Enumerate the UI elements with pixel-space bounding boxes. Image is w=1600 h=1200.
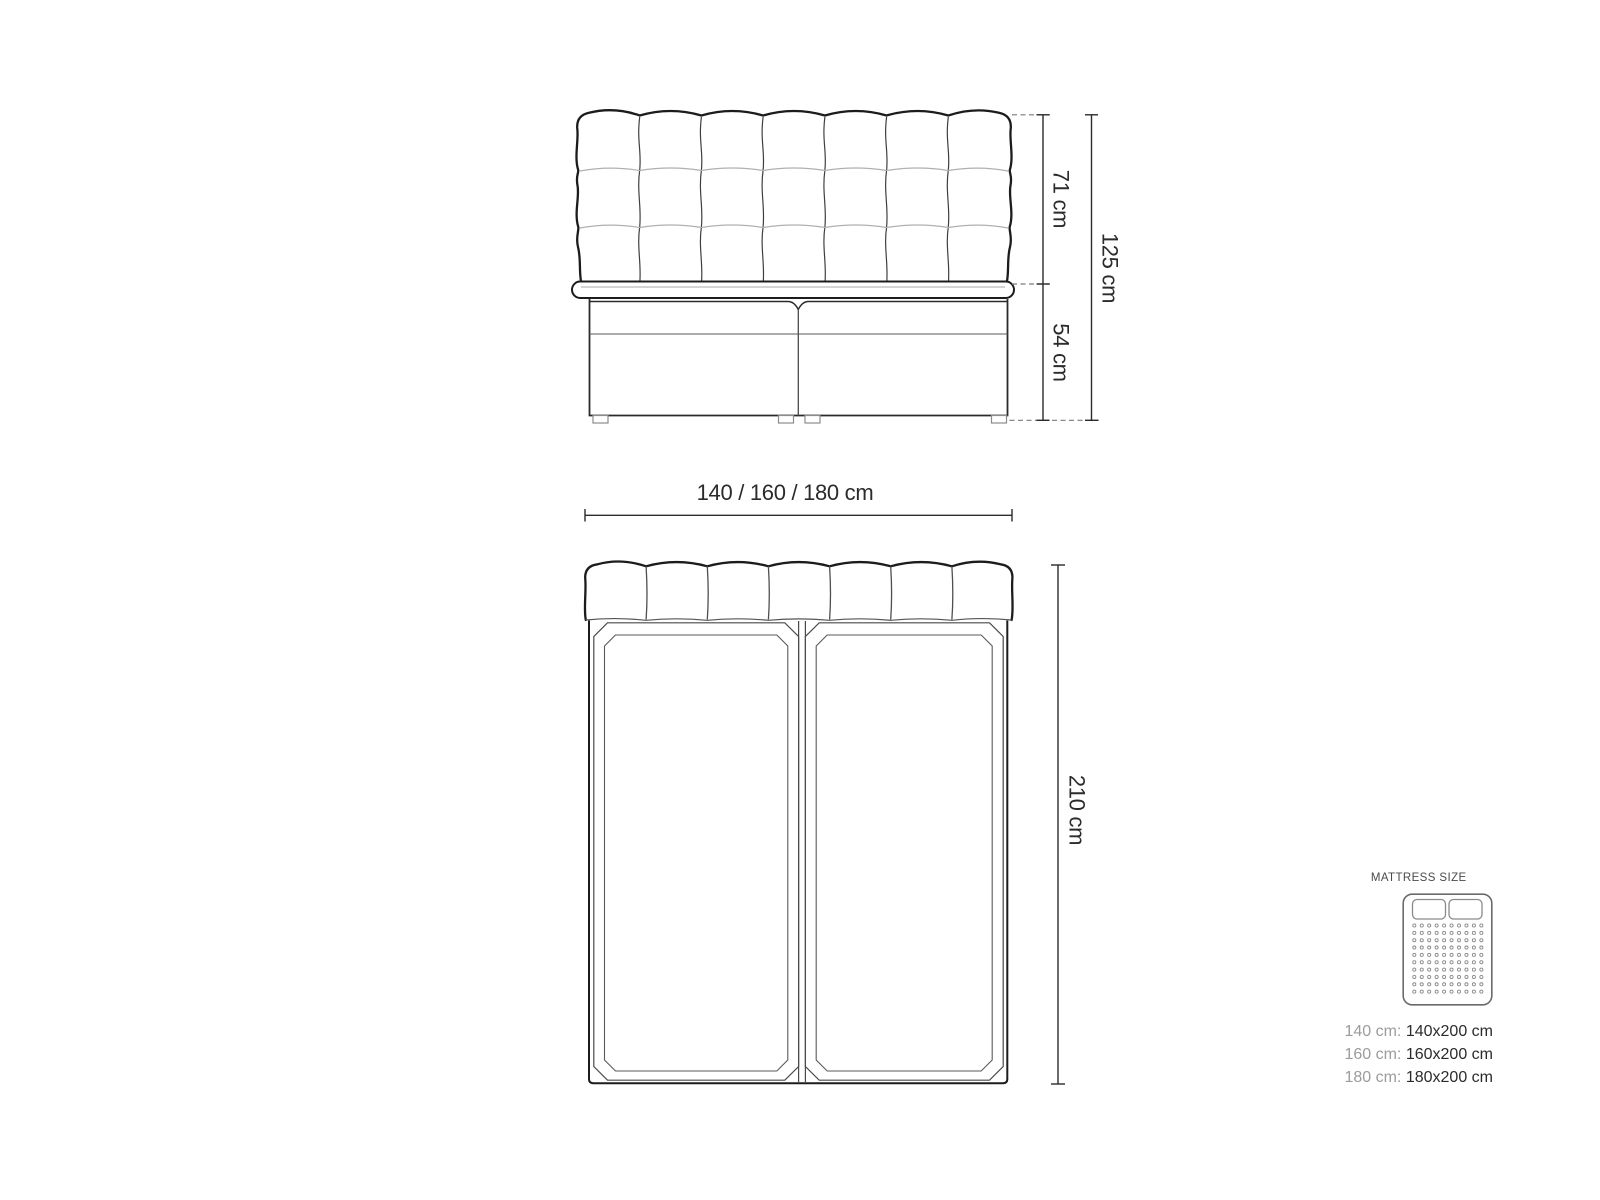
width-dimension: 140 / 160 / 180 cm: [585, 480, 1012, 522]
plan-view: 210 cm: [585, 561, 1090, 1084]
mattress-icon-body: [1403, 894, 1492, 1005]
mattress-size-legend: MATTRESS SIZE 140 cm: 140x200 cm 160 cm:…: [1344, 872, 1493, 1089]
bed-dimensions-diagram: 71 cm 54 cm 125 cm 140 / 160 / 180 cm: [0, 0, 1600, 1200]
size-row-180: 180 cm: 180x200 cm: [1344, 1066, 1493, 1089]
legend-title: MATTRESS SIZE: [1344, 872, 1493, 884]
height-dimension-line-71-54: [1037, 115, 1050, 421]
mattress-edge-bar: [572, 282, 1014, 299]
width-label: 140 / 160 / 180 cm: [697, 480, 874, 505]
headboard-outline: [576, 110, 1011, 293]
base-height-label: 54 cm: [1049, 323, 1074, 381]
size-value: 140x200 cm: [1406, 1023, 1493, 1040]
length-label: 210 cm: [1065, 775, 1090, 845]
plan-mattress-right: [805, 623, 1003, 1080]
size-value: 160x200 cm: [1406, 1046, 1493, 1063]
height-dimension-line-125: [1085, 115, 1098, 421]
size-row-160: 160 cm: 160x200 cm: [1344, 1043, 1493, 1066]
front-view: 71 cm 54 cm 125 cm: [572, 110, 1123, 423]
size-row-140: 140 cm: 140x200 cm: [1344, 1020, 1493, 1043]
headboard-height-label: 71 cm: [1049, 170, 1074, 228]
plan-headboard-dividers: [646, 566, 953, 619]
length-dimension-line-210: [1051, 565, 1065, 1084]
size-label: 180 cm:: [1344, 1069, 1401, 1086]
plan-mattress-left: [594, 623, 799, 1080]
plan-center-split: [799, 621, 806, 1082]
headboard-tuft-horizontal-seams: [580, 168, 1008, 228]
plan-headboard-bottom-edge: [586, 619, 1012, 621]
bed-feet: [593, 416, 1007, 424]
mattress-top-view-icon: [1402, 893, 1493, 1006]
plan-headboard-outline: [585, 561, 1013, 620]
size-label: 160 cm:: [1344, 1046, 1401, 1063]
total-height-label: 125 cm: [1098, 233, 1123, 303]
storage-base: [590, 299, 1008, 416]
size-value: 180x200 cm: [1406, 1069, 1493, 1086]
size-label: 140 cm:: [1344, 1023, 1401, 1040]
headboard-tuft-vertical-seams: [639, 117, 949, 284]
legend-size-list: 140 cm: 140x200 cm 160 cm: 160x200 cm 18…: [1344, 1020, 1493, 1089]
